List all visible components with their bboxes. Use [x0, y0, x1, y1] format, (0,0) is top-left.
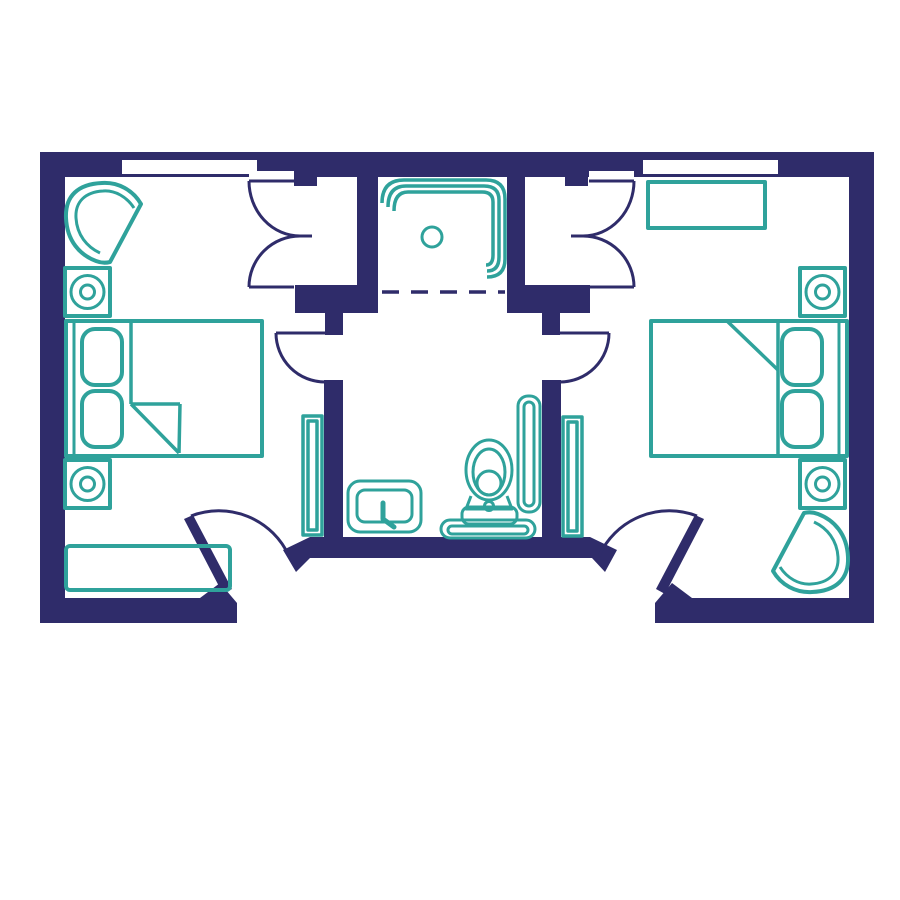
corner-armchair — [773, 512, 848, 592]
blanket-fold — [131, 404, 180, 453]
towel-radiator — [518, 396, 540, 512]
wall-bottom-right — [655, 583, 874, 623]
bathroom-door-left — [276, 333, 325, 382]
closet-doors-right — [571, 181, 634, 287]
speaker-nightstand — [65, 268, 110, 316]
bathroom-door-right — [560, 333, 609, 382]
bathroom-door-arc — [276, 333, 325, 382]
toilet — [441, 440, 535, 538]
pillow — [82, 329, 122, 385]
drain-icon — [422, 227, 442, 247]
pillow — [782, 329, 822, 385]
radiator-left-bedroom — [303, 416, 322, 535]
radiator-right-bedroom — [563, 417, 582, 536]
entry-door-leaf-right — [656, 515, 704, 594]
closet-door-arc — [249, 181, 300, 236]
speaker-nightstand — [800, 460, 845, 508]
closet-door-arc — [249, 236, 300, 287]
toilet-base-inner — [448, 526, 528, 534]
closet-door-arc — [583, 181, 634, 236]
door-swings — [191, 181, 697, 556]
speaker-cone-inner — [81, 285, 95, 299]
bathroom-wall-bottom — [283, 537, 617, 572]
sink-vanity — [348, 481, 421, 532]
toilet-flush — [477, 471, 501, 495]
radiator-inner — [568, 422, 577, 531]
speaker-cone-inner — [81, 477, 95, 491]
dresser — [648, 182, 765, 228]
closet-door-arc — [583, 236, 634, 287]
bathroom-wall-right — [542, 380, 561, 548]
closet-doorway-right — [589, 171, 634, 178]
radiator-inner — [308, 421, 317, 530]
towel-radiator-inner — [524, 402, 534, 506]
bathroom-fixtures — [348, 396, 540, 538]
closet-stub-left — [294, 177, 317, 186]
floor-plan — [0, 0, 900, 900]
speaker-cone-outer — [71, 468, 104, 501]
window-right — [643, 160, 778, 174]
right-bedroom-furniture — [648, 182, 848, 592]
speaker-cone-inner — [816, 285, 830, 299]
wall-left — [40, 152, 65, 623]
speaker-cone-outer — [806, 276, 839, 309]
speaker-cone-outer — [71, 276, 104, 309]
walls — [40, 152, 874, 623]
speaker-nightstand — [65, 460, 110, 508]
radiator-outer — [563, 417, 582, 536]
bathroom-wall-left — [324, 380, 343, 548]
bathroom-door-arc — [560, 333, 609, 382]
double-bed-left — [66, 321, 262, 456]
hall-slab-left — [295, 285, 378, 313]
corner-armchair — [66, 183, 141, 263]
entry-door-leaf-left — [184, 515, 232, 594]
shower-room — [382, 180, 505, 277]
pillow — [82, 391, 122, 447]
bathroom-jamb-right — [542, 313, 560, 335]
double-bed-right — [651, 321, 847, 456]
floor-plan-canvas — [0, 0, 900, 900]
closet-stub-right — [565, 177, 588, 186]
left-bedroom-furniture — [65, 183, 262, 590]
speaker-cone-outer — [806, 468, 839, 501]
closet-doorway-left — [249, 171, 294, 178]
armchair-back — [76, 191, 134, 253]
bathroom-jamb-left — [325, 313, 343, 335]
towel-radiator-outer — [518, 396, 540, 512]
armchair-back — [780, 522, 838, 584]
closet-doors-left — [249, 181, 312, 287]
speaker-nightstand — [800, 268, 845, 316]
wall-right — [849, 152, 874, 623]
speaker-cone-inner — [816, 477, 830, 491]
blanket-fold — [727, 321, 778, 370]
hall-slab-right — [507, 285, 590, 313]
radiator-outer — [303, 416, 322, 535]
shower-tub-inner — [394, 192, 493, 265]
shower-tub-middle — [388, 186, 499, 271]
window-left — [122, 160, 257, 174]
pillow — [782, 391, 822, 447]
